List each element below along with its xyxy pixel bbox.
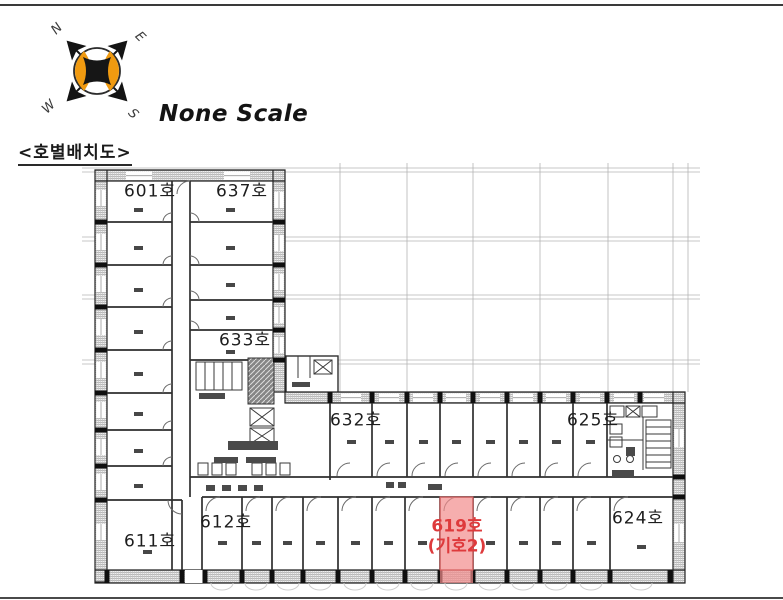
- compass-letter-e: E: [132, 29, 149, 46]
- floor-plan-drawing: N E W S: [0, 0, 783, 600]
- compass-letter-w: W: [39, 96, 60, 117]
- compass-letter-s: S: [125, 106, 141, 122]
- highlighted-room-marker: (기호2): [428, 539, 487, 556]
- room-label-612: 612호: [200, 515, 252, 532]
- scale-note: None Scale: [159, 101, 308, 127]
- room-label-637: 637호: [216, 184, 268, 201]
- compass-center-star: [83, 57, 111, 85]
- room-label-611: 611호: [124, 534, 176, 551]
- compass-rose-icon: N E W S: [39, 13, 155, 129]
- scanned-floor-plan-page: N E W S: [0, 0, 783, 600]
- highlighted-room-label: 619호: [431, 519, 482, 536]
- compass-letter-n: N: [48, 20, 66, 38]
- room-label-601: 601호: [124, 184, 176, 201]
- room-label-633: 633호: [219, 333, 271, 350]
- room-label-625: 625호: [567, 413, 619, 430]
- room-label-632: 632호: [330, 413, 382, 430]
- building-interior: [107, 181, 673, 570]
- plan-title: <호별배치도>: [18, 138, 132, 166]
- exterior-vent-arcs: [211, 583, 652, 590]
- room-label-624: 624호: [612, 511, 664, 528]
